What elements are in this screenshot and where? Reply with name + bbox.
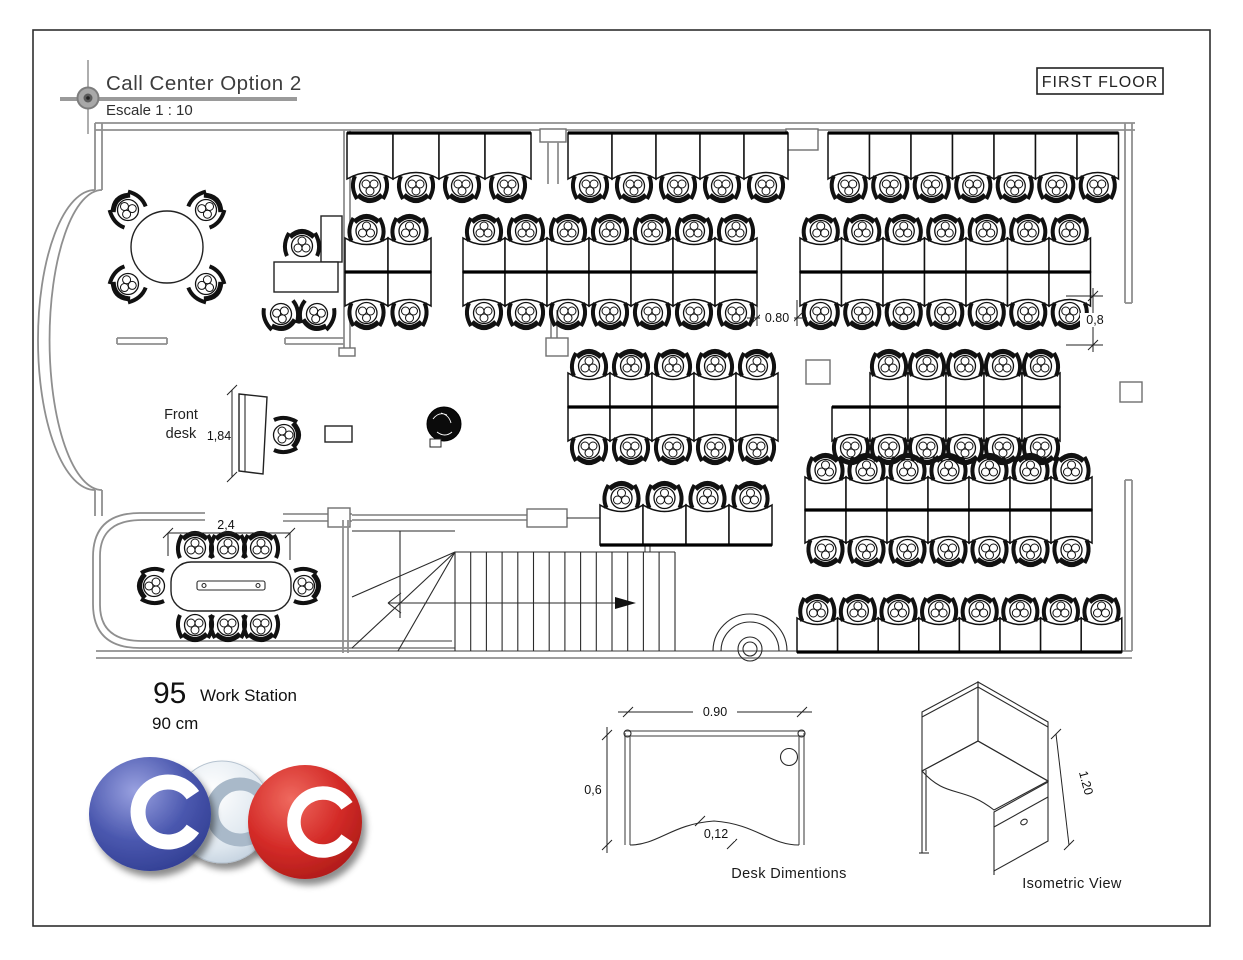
workstation-chair <box>804 217 838 242</box>
workstation-chair <box>808 540 842 565</box>
workstation-desk <box>568 407 610 441</box>
workstation-chair <box>1011 303 1045 328</box>
workstation-chair <box>733 484 767 509</box>
workstation-chair <box>804 303 838 328</box>
workstation-cluster-bottom-row <box>797 597 1122 653</box>
iso-desktop <box>922 741 1048 810</box>
workstation-chair <box>551 303 585 328</box>
workstation-chair <box>604 484 638 509</box>
plant <box>427 407 461 447</box>
workstation-desk <box>463 238 505 272</box>
workstation-desk <box>1051 477 1092 510</box>
workstation-desk <box>612 133 656 179</box>
workstation-desk <box>1049 238 1091 272</box>
workstation-desk <box>505 272 547 306</box>
workstation-desk <box>911 133 953 179</box>
workstation-cluster-island-f <box>805 456 1092 565</box>
desk-depth-dimension <box>602 727 612 853</box>
workstation-chair <box>800 597 834 622</box>
workstation-chair <box>740 438 774 463</box>
workstation-chair <box>656 438 690 463</box>
page-title: Call Center Option 2 <box>106 72 302 95</box>
round-table <box>131 211 203 283</box>
workstation-chair <box>677 217 711 242</box>
workstation-desk <box>1081 618 1122 652</box>
workstation-desk <box>729 505 772 545</box>
conference-room: 2,4 <box>140 518 319 640</box>
workstation-desk <box>589 272 631 306</box>
workstation-desk <box>439 133 485 179</box>
front-desk-dim-text: 1,84 <box>207 429 231 443</box>
workstation-desk <box>547 238 589 272</box>
workstation-chair <box>677 303 711 328</box>
workstation-chair <box>467 217 501 242</box>
workstation-chair <box>593 303 627 328</box>
workstation-desk <box>846 477 887 510</box>
conference-table <box>171 562 291 611</box>
workstation-chair <box>749 176 783 201</box>
workstation-chair <box>970 217 1004 242</box>
workstation-desk <box>568 133 612 179</box>
workstation-desk <box>589 238 631 272</box>
workstation-cluster-island-a <box>345 217 431 328</box>
workstation-desk <box>736 407 778 441</box>
workstation-chair <box>349 217 383 242</box>
workstation-chair <box>1054 540 1088 565</box>
front-desk <box>239 394 267 474</box>
workstation-chair <box>915 176 949 201</box>
workstation-chair <box>1003 597 1037 622</box>
workstation-desk <box>908 373 946 407</box>
front-desk-chair <box>274 418 299 452</box>
workstation-desk <box>686 505 729 545</box>
workstation-desk <box>919 618 960 652</box>
workstation-chair <box>970 303 1004 328</box>
workstation-cluster-top-row-right <box>828 133 1119 201</box>
workstation-chair <box>832 176 866 201</box>
workstation-desk <box>463 272 505 306</box>
desk-diagram-caption: Desk Dimentions <box>731 866 847 882</box>
floor-box <box>325 426 352 442</box>
workstation-chair <box>986 352 1020 377</box>
workstation-chair <box>890 456 924 481</box>
workstation-desk <box>928 477 969 510</box>
workstation-desk <box>1036 133 1078 179</box>
workstation-chair <box>849 456 883 481</box>
workstation-chair <box>881 597 915 622</box>
workstation-chair <box>910 352 944 377</box>
workstation-chair <box>445 176 479 201</box>
workstation-chair <box>1013 540 1047 565</box>
workstation-chair <box>509 217 543 242</box>
workstation-chair <box>635 217 669 242</box>
workstation-desk <box>1022 373 1060 407</box>
workstation-chair <box>647 484 681 509</box>
workstation-desk <box>547 272 589 306</box>
workstation-chair <box>719 217 753 242</box>
workstation-desk <box>345 238 388 272</box>
workstation-chair <box>635 303 669 328</box>
cabinet <box>321 216 342 262</box>
workstation-desk <box>969 477 1010 510</box>
workstation-desk <box>925 238 967 272</box>
workstation-desk <box>694 407 736 441</box>
manager-desk <box>274 262 338 292</box>
manager-chair <box>285 232 319 257</box>
workstation-desk <box>846 510 887 543</box>
workstation-desk <box>870 133 912 179</box>
workstation-chair <box>1044 597 1078 622</box>
workstation-desk <box>652 407 694 441</box>
workstation-desk <box>832 407 870 441</box>
workstation-cluster-top-row-middle <box>568 133 788 201</box>
workstation-desk <box>1049 272 1091 306</box>
workstation-desk <box>828 133 870 179</box>
workstation-desk <box>656 133 700 179</box>
workstation-chair <box>491 176 525 201</box>
workstation-desk <box>946 407 984 441</box>
workstation-desk <box>984 373 1022 407</box>
iso-back-panel <box>978 682 1048 781</box>
workstation-desk <box>842 272 884 306</box>
isometric-view: 1.20 Isometric View <box>919 682 1122 892</box>
workstation-chair <box>1024 352 1058 377</box>
workstation-desk <box>883 238 925 272</box>
workstation-desk <box>870 373 908 407</box>
workstation-desk <box>715 238 757 272</box>
workstation-chair <box>928 217 962 242</box>
workstation-chair <box>614 352 648 377</box>
grommet-hole <box>781 749 798 766</box>
workstation-chair <box>931 456 965 481</box>
workstation-desk <box>994 133 1036 179</box>
workstation-desk <box>805 477 846 510</box>
workstation-chair <box>1054 456 1088 481</box>
conference-dim-text: 2,4 <box>217 518 234 532</box>
workstation-chair <box>392 217 426 242</box>
workstation-desk <box>388 238 431 272</box>
workstation-chair <box>593 217 627 242</box>
workstation-desk <box>631 238 673 272</box>
workstation-chair <box>698 352 732 377</box>
workstation-clusters <box>345 133 1122 652</box>
workstation-chair <box>740 352 774 377</box>
workstation-desk <box>652 373 694 407</box>
workstation-desk <box>883 272 925 306</box>
workstation-chair <box>1039 176 1073 201</box>
workstation-desk <box>870 407 908 441</box>
workstation-desk <box>878 618 919 652</box>
workstation-chair <box>887 303 921 328</box>
workstation-chair <box>928 303 962 328</box>
workstation-chair <box>841 597 875 622</box>
workstation-count: 95 <box>153 677 186 710</box>
workstation-desk <box>797 618 838 652</box>
workstation-cluster-island-c <box>800 217 1091 328</box>
desk-size-label: 90 cm <box>152 714 198 733</box>
floor-label: FIRST FLOOR <box>1042 74 1159 91</box>
workstation-desk <box>1077 133 1119 179</box>
workstation-chair <box>614 438 648 463</box>
workstation-chair <box>353 176 387 201</box>
guest-chair <box>262 299 301 332</box>
iso-height-dimension <box>1051 729 1074 850</box>
workstation-desk <box>800 272 842 306</box>
workstation-chair <box>948 352 982 377</box>
workstation-chair <box>931 540 965 565</box>
workstation-desk <box>1008 272 1050 306</box>
workstation-desk <box>1051 510 1092 543</box>
door-arc <box>713 614 787 661</box>
workstation-chair <box>690 484 724 509</box>
workstation-desk <box>694 373 736 407</box>
company-logo <box>89 757 362 879</box>
workstation-desk <box>925 272 967 306</box>
workstation-chair <box>1053 217 1087 242</box>
workstation-cluster-top-row-left <box>347 133 531 201</box>
iso-left-panel <box>922 682 978 771</box>
workstation-chair <box>572 352 606 377</box>
front-desk-label-2: desk <box>166 426 197 442</box>
workstation-chair <box>845 217 879 242</box>
workstation-chair <box>705 176 739 201</box>
workstation-desk <box>1041 618 1082 652</box>
workstation-chair <box>551 217 585 242</box>
workstation-cluster-island-d <box>568 352 778 463</box>
workstation-desk <box>953 133 995 179</box>
workstation-chair <box>845 303 879 328</box>
workstation-chair <box>887 217 921 242</box>
workstation-desk <box>347 133 393 179</box>
floor-plan-svg: Call Center Option 2 Escale 1 : 10 FIRST… <box>0 0 1243 960</box>
front-desk-label-1: Front <box>164 407 198 423</box>
workstation-chair <box>399 176 433 201</box>
workstation-desk <box>984 407 1022 441</box>
desk-cut-text: 0,12 <box>704 827 728 841</box>
workstation-cluster-row-above-stairs <box>600 484 772 546</box>
workstation-desk <box>1008 238 1050 272</box>
workstation-desk <box>700 133 744 179</box>
workstation-desk <box>485 133 531 179</box>
workstation-cluster-island-b <box>463 217 757 328</box>
workstation-chair <box>392 303 426 328</box>
gap-v-dim-text: 0,8 <box>1086 313 1103 327</box>
workstation-desk <box>643 505 686 545</box>
workstation-desk <box>744 133 788 179</box>
workstation-chair <box>661 176 695 201</box>
workstation-chair <box>467 303 501 328</box>
workstation-desk <box>908 407 946 441</box>
workstation-chair <box>873 176 907 201</box>
workstation-desk <box>345 272 388 306</box>
workstation-summary: 95 Work Station 90 cm <box>152 677 297 733</box>
workstation-chair <box>656 352 690 377</box>
desk-depth-text: 0,6 <box>584 783 601 797</box>
workstation-chair <box>719 303 753 328</box>
workstation-desk <box>736 373 778 407</box>
workstation-desk <box>959 618 1000 652</box>
isometric-caption: Isometric View <box>1022 876 1122 892</box>
workstation-desk <box>946 373 984 407</box>
workstation-desk <box>887 510 928 543</box>
workstation-chair <box>349 303 383 328</box>
workstation-count-label: Work Station <box>200 686 297 705</box>
workstation-chair <box>872 352 906 377</box>
workstation-chair <box>956 176 990 201</box>
workstation-chair <box>972 456 1006 481</box>
workstation-desk <box>800 238 842 272</box>
workstation-desk <box>505 238 547 272</box>
workstation-chair <box>1084 597 1118 622</box>
workstation-desk <box>568 373 610 407</box>
staircase <box>352 531 675 651</box>
workstation-desk <box>715 272 757 306</box>
desk-dimension-diagram: 0.90 0,6 0,12 Desk Dimentions <box>584 705 846 882</box>
workstation-chair <box>922 597 956 622</box>
workstation-desk <box>966 238 1008 272</box>
workstation-desk <box>673 272 715 306</box>
workstation-chair <box>849 540 883 565</box>
workstation-chair <box>573 176 607 201</box>
workstation-chair <box>998 176 1032 201</box>
workstation-chair <box>617 176 651 201</box>
workstation-desk <box>842 238 884 272</box>
iso-height-text: 1.20 <box>1076 769 1096 796</box>
scale-label: Escale 1 : 10 <box>106 102 193 119</box>
floor-tag: FIRST FLOOR <box>1037 68 1163 94</box>
workstation-chair <box>808 456 842 481</box>
front-desk-area: Front desk 1,84 <box>164 385 461 482</box>
workstation-cluster-island-e <box>832 352 1060 463</box>
office-room <box>106 188 342 333</box>
workstation-chair <box>972 540 1006 565</box>
workstation-desk <box>1010 510 1051 543</box>
workstation-desk <box>1000 618 1041 652</box>
workstation-desk <box>600 505 643 545</box>
workstation-desk <box>928 510 969 543</box>
workstation-chair <box>1081 176 1115 201</box>
workstation-desk <box>631 272 673 306</box>
workstation-chair <box>890 540 924 565</box>
workstation-desk <box>805 510 846 543</box>
gap-h-dim-text: 0.80 <box>765 311 789 325</box>
workstation-desk <box>610 373 652 407</box>
workstation-chair <box>698 438 732 463</box>
workstation-chair <box>1011 217 1045 242</box>
workstation-desk <box>1022 407 1060 441</box>
iso-handle <box>1020 818 1029 826</box>
workstation-desk <box>838 618 879 652</box>
workstation-chair <box>963 597 997 622</box>
workstation-desk <box>610 407 652 441</box>
bay-window-arc <box>38 190 95 490</box>
workstation-desk <box>393 133 439 179</box>
workstation-desk <box>1010 477 1051 510</box>
desk-width-text: 0.90 <box>703 705 727 719</box>
workstation-chair <box>1013 456 1047 481</box>
drawing-sheet: Call Center Option 2 Escale 1 : 10 FIRST… <box>0 0 1243 960</box>
workstation-chair <box>509 303 543 328</box>
workstation-chair <box>572 438 606 463</box>
workstation-desk <box>887 477 928 510</box>
workstation-desk <box>966 272 1008 306</box>
workstation-desk <box>969 510 1010 543</box>
workstation-desk <box>673 238 715 272</box>
workstation-desk <box>388 272 431 306</box>
guest-chair <box>297 299 336 332</box>
